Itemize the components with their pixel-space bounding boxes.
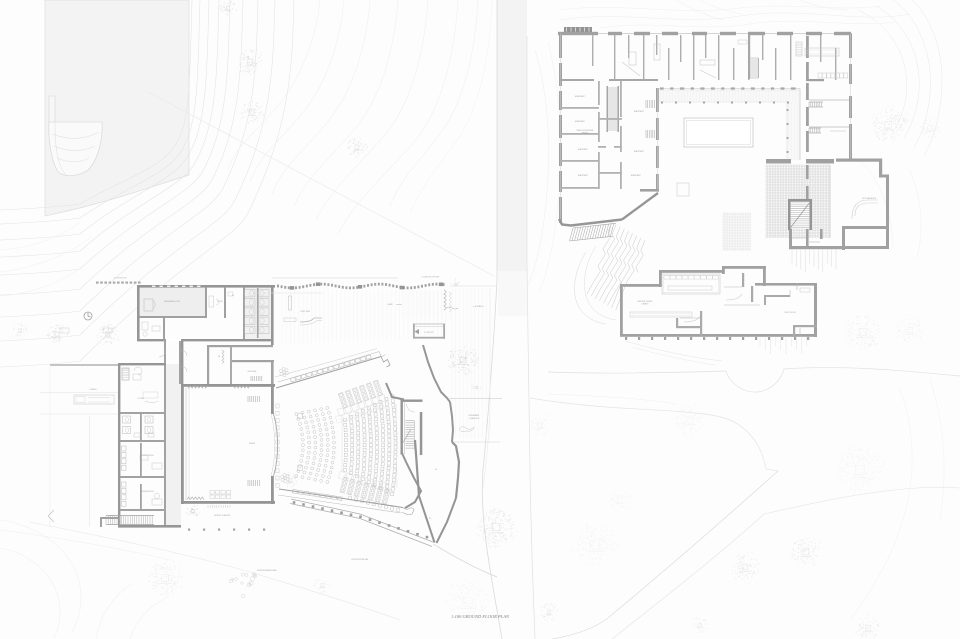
svg-text:100: 100 bbox=[435, 469, 438, 471]
svg-text:TICKET DESK: TICKET DESK bbox=[300, 311, 310, 313]
svg-text:DRESSING ROOM: DRESSING ROOM bbox=[141, 491, 155, 493]
svg-text:◄ TOUR PICK UP POINT: ◄ TOUR PICK UP POINT bbox=[421, 277, 440, 279]
svg-text:STUDIO: STUDIO bbox=[217, 301, 224, 303]
svg-text:REHEARSAL ROOM: REHEARSAL ROOM bbox=[164, 300, 180, 303]
svg-text:TICKET BOX: TICKET BOX bbox=[424, 332, 434, 334]
svg-text:WC: WC bbox=[232, 295, 234, 297]
svg-text:MULTI ROOM: MULTI ROOM bbox=[785, 312, 796, 314]
svg-text:NEW PML DIGITAL: NEW PML DIGITAL bbox=[638, 300, 653, 303]
svg-text:DRESSING ROOM: DRESSING ROOM bbox=[141, 455, 155, 457]
svg-text:LOUNGE: LOUNGE bbox=[138, 398, 145, 400]
svg-text:LIBRARY: LIBRARY bbox=[641, 303, 649, 306]
svg-text:1:100 GROUND FLOOR PLAN: 1:100 GROUND FLOOR PLAN bbox=[451, 614, 510, 619]
svg-text:STAGE: STAGE bbox=[249, 442, 256, 445]
svg-text:◄ TOUR PICK UP: ◄ TOUR PICK UP bbox=[113, 278, 126, 280]
svg-text:LOBBY: LOBBY bbox=[387, 304, 394, 306]
svg-text:110: 110 bbox=[429, 518, 431, 520]
svg-text:GR: GR bbox=[218, 356, 220, 358]
